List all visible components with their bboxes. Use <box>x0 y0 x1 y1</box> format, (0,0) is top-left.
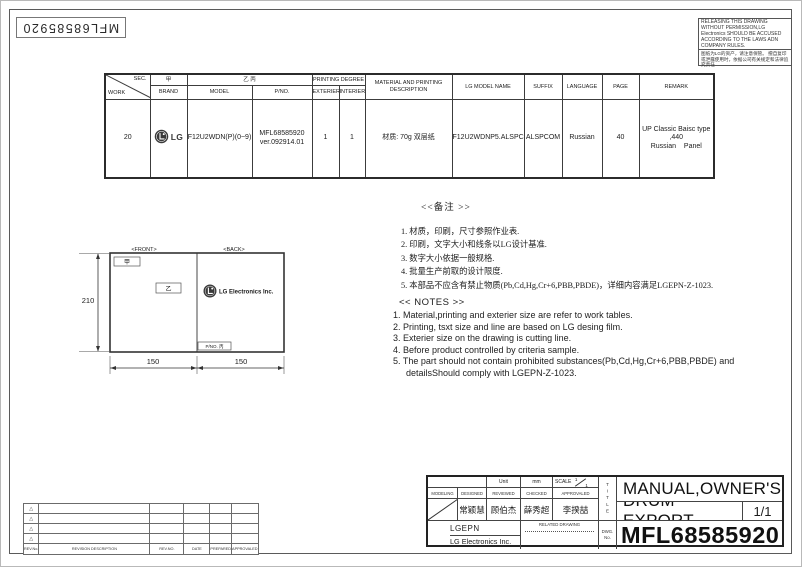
revision-row: △ <box>24 504 259 514</box>
notes-chinese: <<备注 >> 1. 材质，印刷，尺寸参照作业表. 2. 印刷，文字大小和线条以… <box>401 199 793 292</box>
revision-marker-icon: △ <box>24 534 39 544</box>
back-logo-text: LG Electronics Inc. <box>219 290 274 296</box>
note-cn-2: 2. 印刷，文字大小和线条以LG设计基准. <box>401 238 793 251</box>
approvaled-name: 李揆喆 <box>553 499 599 521</box>
revision-row: △ <box>24 534 259 544</box>
title-line1: MANUAL,OWNER'S <box>617 477 782 502</box>
remark-line1: UP Classic Baisc type ,440 <box>640 126 714 143</box>
rev-no-header: REV.No. <box>24 544 39 555</box>
scale-fraction: 1 1 <box>573 477 588 487</box>
header-suffix: SUFFIX <box>524 74 562 100</box>
date-header: DATE <box>184 544 210 555</box>
company-cell: LGEPN LG Electronics Inc. <box>428 521 521 549</box>
related-drawing-cell: RELATED DRAWING <box>521 521 599 549</box>
note-en-5: 5. The part should not contain prohibite… <box>393 356 779 379</box>
cell-brand: LG <box>150 100 187 179</box>
spec-table: SEC. WORK 甲 乙 丙 PRINTING DEGREE MATERIAL… <box>104 73 715 179</box>
cell-work: 20 <box>105 100 150 179</box>
note-en-3: 3. Exterier size on the drawing is cutti… <box>393 333 779 345</box>
designed-label: DESIGNED <box>458 488 487 499</box>
cell-language: Russian <box>562 100 602 179</box>
drawing-sheet: MFL68585920 RELEASING THIS DRAWING WITHO… <box>0 0 802 567</box>
notes-en-title: << NOTES >> <box>393 297 779 308</box>
revision-description-header: REVISION DESCRIPTION <box>39 544 150 555</box>
revision-header-row: REV.No. REVISION DESCRIPTION REV.NO. DAT… <box>24 544 259 555</box>
title-block: Unit mm SCALE 1 1 MODELING DESIGNED REVI… <box>426 475 784 547</box>
cell-suffix: ALSPCOM <box>524 100 562 179</box>
header-brand-cn: 甲 <box>150 74 187 86</box>
checked-label: CHECKED <box>521 488 553 499</box>
header-pno: P/NO. <box>252 86 312 100</box>
title-vertical-text: TITLE <box>605 482 610 515</box>
related-drawing-dotted-line <box>525 531 594 532</box>
cell-interier: 1 <box>339 100 365 179</box>
part-number-stamp: MFL68585920 <box>16 17 126 38</box>
note-cn-5: 5. 本部品不应含有禁止物质(Pb,Cd,Hg,Cr+6,PBB,PBDE)，详… <box>401 279 793 292</box>
cell-page: 40 <box>602 100 639 179</box>
note-en-4: 4. Before product controlled by criteria… <box>393 345 779 357</box>
company-underline <box>450 535 520 536</box>
modeling-label: MODELING <box>428 488 458 499</box>
revision-marker-icon: △ <box>24 514 39 524</box>
note-cn-3: 3. 数字大小依据一般规格. <box>401 252 793 265</box>
company-full-name: LG Electronics Inc. <box>450 537 511 546</box>
revision-row: △ <box>24 524 259 534</box>
cell-remark: UP Classic Baisc type ,440 Russian Panel <box>639 100 714 179</box>
dwg-no-cell: DWG. No. <box>599 521 617 549</box>
dim-height-label: 210 <box>82 296 95 305</box>
note-cn-4: 4. 批量生产前取的设计限度. <box>401 265 793 278</box>
note-cn-1: 1. 材质，印刷，尺寸参照作业表. <box>401 225 793 238</box>
header-material: MATERIAL AND PRINTING DESCRIPTION <box>365 74 452 100</box>
cell-model: F12U2WDN(P)(0~9) <box>187 100 252 179</box>
header-printing-degree: PRINTING DEGREE <box>312 74 365 86</box>
back-label: <BACK> <box>223 247 244 253</box>
unit-value: mm <box>521 477 553 488</box>
header-interier: INTERIER <box>339 86 365 100</box>
sheet-number: 1/1 <box>743 502 782 521</box>
cell-lg-model-name: F12U2WDNP5.ALSPCOM <box>452 100 524 179</box>
header-model: MODEL <box>187 86 252 100</box>
dim-width-right-label: 150 <box>235 357 248 366</box>
reviewed-name: 顾伯杰 <box>487 499 521 521</box>
header-brand: BRAND <box>150 86 187 100</box>
checked-name: 薛秀超 <box>521 499 553 521</box>
header-page: PAGE <box>602 74 639 100</box>
arrow-left-icon <box>111 366 117 370</box>
arrow-left2-icon <box>198 366 204 370</box>
note-en-1: 1. Material,printing and exterier size a… <box>393 310 779 322</box>
designed-name: 常颖慧 <box>458 499 487 521</box>
header-remark: REMARK <box>639 74 714 100</box>
header-lg-model-name: LG MODEL NAME <box>452 74 524 100</box>
header-language: LANGUAGE <box>562 74 602 100</box>
front-label: <FRONT> <box>131 247 156 253</box>
scale-label: SCALE <box>555 479 571 485</box>
prepared-header: PREPARED <box>210 544 232 555</box>
empty-cell <box>428 477 487 488</box>
arrow-up-icon <box>96 254 100 260</box>
no-label: No. <box>604 535 611 541</box>
front-box1-label: 甲 <box>124 259 130 266</box>
header-exterier: EXTERIER <box>312 86 339 100</box>
signature-slash <box>428 499 458 521</box>
package-drawing: <FRONT> <BACK> 甲 乙 LG Electronics Inc. P… <box>61 241 301 381</box>
brand-text: LG <box>171 132 183 142</box>
cell-exterier: 1 <box>312 100 339 179</box>
pno-line1: MFL68585920 <box>253 130 312 138</box>
notice-english: RELEASING THIS DRAWING WITHOUT PERMISSIO… <box>699 19 791 50</box>
dim-width-left-label: 150 <box>147 357 160 366</box>
lg-logo-icon <box>154 129 169 144</box>
stamp-text: MFL68585920 <box>22 21 119 35</box>
remark-line2: Russian Panel <box>640 143 714 151</box>
scale-denominator: 1 <box>585 483 588 488</box>
work-label: WORK <box>108 90 125 97</box>
scale-numerator: 1 <box>575 477 578 482</box>
revision-row: △ <box>24 514 259 524</box>
sec-work-header: SEC. WORK <box>105 74 150 100</box>
pno-line2: ver.092914.01 <box>253 139 312 147</box>
arrow-right-icon <box>191 366 197 370</box>
notes-english: << NOTES >> 1. Material,printing and ext… <box>393 297 779 379</box>
revision-marker-icon: △ <box>24 524 39 534</box>
scale-cell: SCALE 1 1 <box>553 477 599 488</box>
release-notice: RELEASING THIS DRAWING WITHOUT PERMISSIO… <box>698 18 792 66</box>
rev-no2-header: REV.NO. <box>150 544 184 555</box>
approvaled-header: APPROVALED <box>232 544 258 555</box>
cell-pno: MFL68585920 ver.092914.01 <box>252 100 312 179</box>
notice-chinese: 图纸为LG的资产，请注意保管。 擅自复印或泄露使用时，依据公司有关规定和法律追究… <box>699 50 791 69</box>
drawing-number: MFL68585920 <box>617 521 782 549</box>
cell-material: 材质: 70g 双层纸 <box>365 100 452 179</box>
reviewed-label: REVIEWED <box>487 488 521 499</box>
arrow-down-icon <box>96 346 100 352</box>
sec-label: SEC. <box>134 76 147 83</box>
header-model-cn: 乙 丙 <box>187 74 312 86</box>
approvaled-label: APPROVALED <box>553 488 599 499</box>
arrow-right2-icon <box>278 366 284 370</box>
back-pno-label: P/NO. 丙 <box>205 344 224 350</box>
front-box2-label: 乙 <box>165 286 171 293</box>
company-name: LGEPN <box>450 524 480 533</box>
revision-table: △ △ △ △ REV.No. REVISION DESCRIPTION REV… <box>23 503 259 555</box>
notes-cn-title: <<备注 >> <box>421 199 793 213</box>
unit-label: Unit <box>487 477 521 488</box>
modeling-signature <box>428 499 458 521</box>
note-en-2: 2. Printing, tsxt size and line are base… <box>393 322 779 334</box>
title-line2: DRUM-EXPORT <box>617 502 743 521</box>
revision-marker-icon: △ <box>24 504 39 514</box>
related-drawing-label: RELATED DRAWING <box>539 522 580 527</box>
lg-logo-icon <box>204 285 217 298</box>
title-vertical-cell: TITLE <box>599 477 617 521</box>
